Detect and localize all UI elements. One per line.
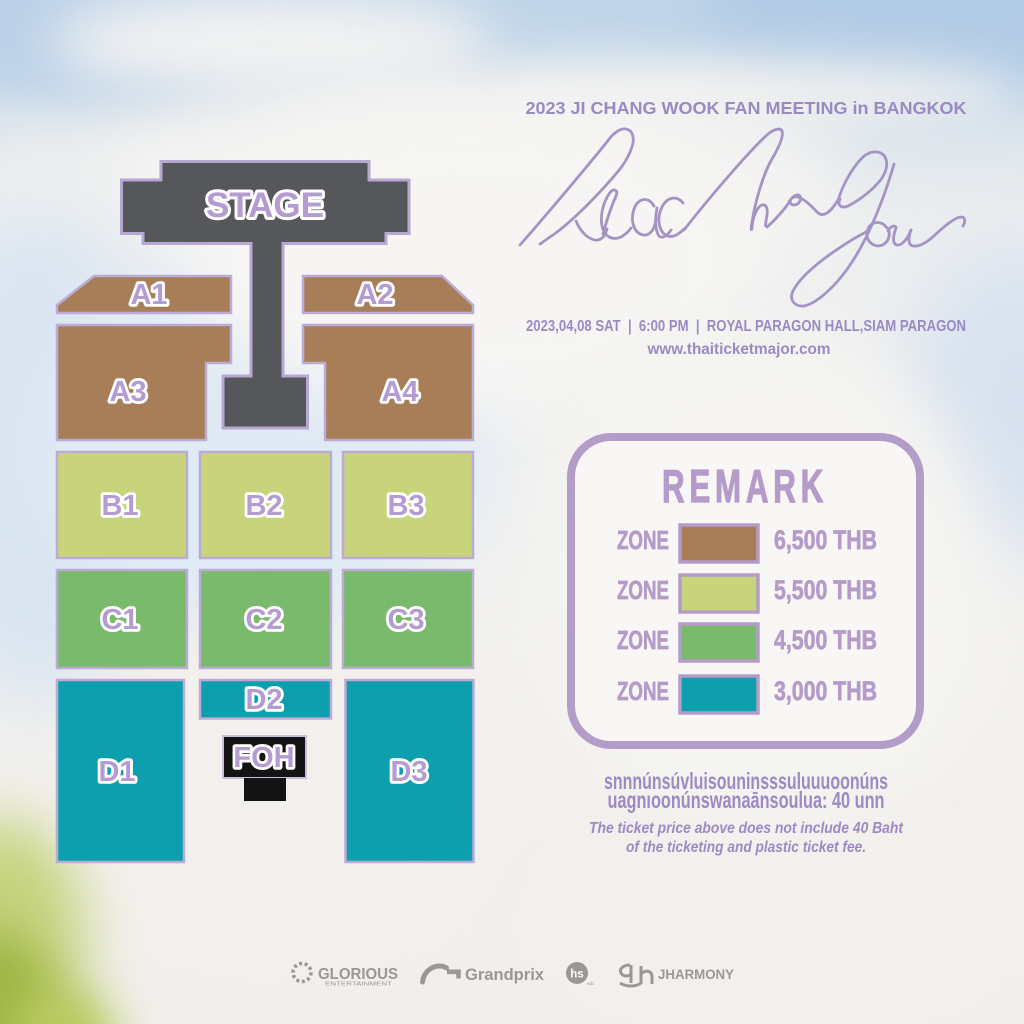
svg-text:uagnıoonúnswanaānsoulua: 40 un: uagnıoonúnswanaānsoulua: 40 unn	[608, 787, 885, 813]
svg-text:B2: B2	[245, 490, 282, 522]
svg-text:2023 JI CHANG WOOK FAN MEETING: 2023 JI CHANG WOOK FAN MEETING in BANGKO…	[526, 98, 967, 118]
svg-text:FOH: FOH	[233, 742, 294, 774]
svg-text:ZONE: ZONE	[617, 625, 669, 655]
svg-text:STAGE: STAGE	[206, 186, 324, 225]
svg-text:5,500 THB: 5,500 THB	[774, 575, 877, 605]
svg-text:The ticket price above does no: The ticket price above does not include …	[589, 820, 904, 837]
svg-text:2023,04,08 SAT | 6:00 PM |: 2023,04,08 SAT | 6:00 PM | ROYAL PARAGON…	[526, 318, 966, 335]
svg-text:B1: B1	[101, 490, 138, 522]
svg-text:C2: C2	[245, 604, 282, 636]
svg-text:C1: C1	[101, 604, 138, 636]
svg-text:ZONE: ZONE	[617, 575, 669, 605]
svg-text:6,500 THB: 6,500 THB	[774, 525, 877, 555]
svg-text:D3: D3	[390, 756, 427, 788]
svg-text:A2: A2	[356, 279, 393, 311]
svg-text:JHARMONY: JHARMONY	[658, 966, 735, 982]
svg-text:Grandprix: Grandprix	[465, 966, 545, 984]
svg-text:A3: A3	[109, 376, 146, 408]
svg-text:hs: hs	[570, 969, 583, 981]
svg-text:ENTERTAINMENT: ENTERTAINMENT	[325, 982, 393, 988]
svg-text:REMARK: REMARK	[662, 460, 828, 512]
svg-text:C3: C3	[387, 604, 424, 636]
svg-text:D1: D1	[98, 756, 135, 788]
svg-text:www.thaiticketmajor.com: www.thaiticketmajor.com	[647, 341, 831, 358]
svg-text:B3: B3	[387, 490, 424, 522]
svg-text:edc: edc	[587, 981, 595, 986]
svg-text:4,500 THB: 4,500 THB	[774, 625, 877, 655]
svg-text:of the ticketing and plastic t: of the ticketing and plastic ticket fee.	[626, 839, 866, 856]
svg-text:A1: A1	[130, 279, 167, 311]
svg-text:ZONE: ZONE	[617, 525, 669, 555]
svg-text:ZONE: ZONE	[617, 676, 669, 706]
svg-text:A4: A4	[381, 376, 418, 408]
svg-text:GLORIOUS: GLORIOUS	[318, 966, 398, 983]
svg-text:D2: D2	[245, 684, 282, 716]
svg-text:3,000 THB: 3,000 THB	[774, 676, 877, 706]
